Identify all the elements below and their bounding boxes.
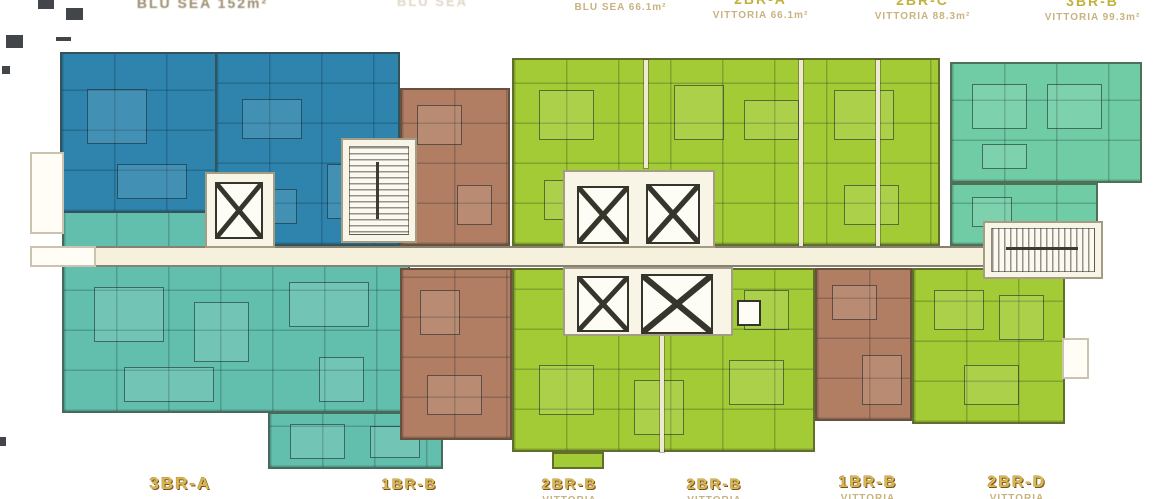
furniture-mark	[539, 365, 594, 415]
unit-area-label: VITTORIA 66.1m²	[683, 10, 838, 21]
furniture-mark	[117, 164, 187, 199]
furniture-mark	[999, 295, 1044, 340]
unit-1br-b-lower-left-center[interactable]	[400, 268, 512, 440]
furniture-mark	[832, 285, 877, 320]
furniture-mark	[729, 360, 784, 405]
unit-label-top-2br-a: 2BR-A VITTORIA 66.1m²	[683, 0, 838, 21]
unit-label-top-2br-c: 2BR-C VITTORIA 88.3m²	[840, 0, 1005, 22]
unit-label-top-3br-b: 3BR-B VITTORIA 99.3m²	[1015, 0, 1170, 23]
unit-type-label: 3BR-A	[150, 474, 212, 493]
unit-label-top-blu-sea-2: BLU SEA	[345, 0, 520, 9]
stair-treads	[991, 228, 1095, 272]
unit-separation-wall	[644, 60, 648, 168]
furniture-mark	[539, 90, 594, 140]
unit-type-label: 2BR-B	[542, 476, 598, 493]
unit-area-label: VITTORIA	[657, 495, 772, 499]
unit-label-top-blu-sea-1: BLU SEA 152m²	[95, 0, 310, 11]
central-corridor	[95, 246, 1103, 267]
unit-label-bottom-2br-d: 2BR-D VITTORIA	[958, 474, 1076, 499]
elevator-x-icon	[579, 188, 627, 242]
elevator-shaft	[215, 182, 263, 239]
elevator-shaft	[577, 186, 629, 244]
unit-label-bottom-3br-a: 3BR-A	[118, 474, 243, 494]
unit-label-bottom-2br-b-2: 2BR-B VITTORIA	[657, 476, 772, 499]
unit-area-label: BLU SEA 152m²	[137, 0, 268, 11]
furniture-mark	[94, 287, 164, 342]
furniture-mark	[87, 89, 147, 144]
elevator-shaft	[641, 274, 713, 334]
unit-separation-wall	[799, 60, 803, 246]
elevator-x-icon	[643, 276, 711, 332]
unit-label-bottom-1br-b-right: 1BR-B VITTORIA	[812, 474, 924, 499]
furniture-mark	[634, 380, 684, 435]
unit-separation-wall	[876, 60, 880, 246]
furniture-mark	[242, 99, 302, 139]
elevator-x-icon	[217, 184, 261, 237]
stair-rail	[1006, 247, 1078, 250]
unit-separation-wall	[660, 336, 664, 452]
scan-artifact	[6, 35, 23, 48]
furniture-mark	[964, 365, 1019, 405]
unit-area-label: VITTORIA	[812, 493, 924, 499]
unit-3br-b[interactable]	[950, 62, 1142, 183]
stair-treads	[349, 146, 409, 235]
unit-type-label: 1BR-B	[382, 476, 438, 493]
furniture-mark	[844, 185, 899, 225]
floor-plan-canvas: BLU SEA 152m² BLU SEA BLU SEA 66.1m² 2BR…	[0, 0, 1170, 499]
stair-rail	[376, 162, 379, 219]
unit-label-bottom-1br-b-left: 1BR-B	[352, 476, 467, 494]
unit-area-label: VITTORIA	[512, 495, 627, 499]
balcony-outline	[1062, 338, 1089, 379]
scan-artifact	[2, 66, 10, 74]
elevator-shaft	[646, 184, 700, 244]
furniture-mark	[417, 105, 462, 145]
furniture-mark	[982, 144, 1027, 169]
scan-artifact	[66, 8, 83, 20]
scan-artifact	[56, 37, 71, 41]
furniture-mark	[289, 282, 369, 327]
furniture-mark	[194, 302, 249, 362]
unit-type-label: 2BR-D	[988, 474, 1047, 491]
unit-area-label: VITTORIA	[958, 493, 1076, 499]
utility-shaft	[737, 300, 761, 326]
unit-label-bottom-2br-b-1: 2BR-B VITTORIA	[512, 476, 627, 499]
scan-artifact	[38, 0, 54, 9]
furniture-mark	[124, 367, 214, 402]
elevator-x-icon	[648, 186, 698, 242]
unit-type-label: 2BR-C	[896, 0, 949, 8]
unit-type-label: 2BR-A	[734, 0, 787, 7]
elevator-x-icon	[579, 278, 627, 330]
unit-area-label: VITTORIA 99.3m²	[1015, 12, 1170, 23]
furniture-mark	[1047, 84, 1102, 129]
unit-2br-b-lower-step[interactable]	[552, 452, 604, 469]
walkway-outline	[30, 246, 96, 267]
furniture-mark	[972, 84, 1027, 129]
elevator-shaft	[577, 276, 629, 332]
furniture-mark	[420, 290, 460, 335]
furniture-mark	[862, 355, 902, 405]
furniture-mark	[427, 375, 482, 415]
furniture-mark	[934, 290, 984, 330]
furniture-mark	[319, 357, 364, 402]
furniture-mark	[290, 424, 345, 459]
unit-area-label: VITTORIA 88.3m²	[840, 11, 1005, 22]
unit-1br-b-lower-right[interactable]	[815, 268, 912, 421]
furniture-mark	[834, 90, 894, 140]
furniture-mark	[457, 185, 492, 225]
balcony-outline	[30, 152, 64, 234]
unit-area-label: BLU SEA	[397, 0, 468, 9]
unit-type-label: 1BR-B	[839, 474, 898, 491]
unit-2br-d[interactable]	[912, 268, 1065, 424]
furniture-mark	[674, 85, 724, 140]
scan-artifact	[0, 437, 6, 446]
unit-type-label: 3BR-B	[1066, 0, 1119, 9]
furniture-mark	[744, 100, 799, 140]
unit-type-label: 2BR-B	[687, 476, 743, 493]
